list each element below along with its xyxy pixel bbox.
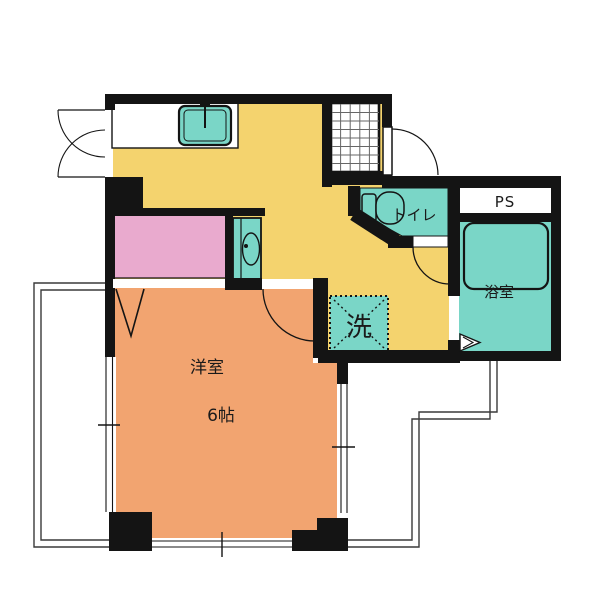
wall-above-closet bbox=[105, 208, 265, 216]
wall-room-corner-bl bbox=[109, 512, 152, 551]
entrance-porch bbox=[331, 103, 379, 172]
room-door-opening bbox=[262, 279, 313, 289]
washbasin-unit bbox=[233, 218, 261, 279]
closet bbox=[113, 214, 225, 278]
wall-toilet-door-left bbox=[388, 236, 413, 248]
outside-area bbox=[392, 90, 562, 176]
floor-plan: 洋室 6帖 洗 トイレ PS 浴室 bbox=[0, 0, 600, 600]
closet-opening bbox=[113, 279, 225, 288]
wall-top bbox=[105, 94, 392, 104]
wall-top-right bbox=[382, 176, 561, 188]
wall-porch-bottom bbox=[322, 171, 392, 185]
wall-under-basin bbox=[225, 278, 262, 290]
wall-room-right-lower bbox=[337, 361, 348, 384]
washbasin-drain-icon bbox=[244, 244, 248, 248]
window-right bbox=[338, 384, 350, 513]
floor-plan-canvas: 洋室 6帖 洗 トイレ PS 浴室 bbox=[0, 0, 600, 600]
wall-room-right-upper bbox=[313, 278, 328, 358]
wall-bath-bottom bbox=[445, 351, 561, 361]
wall-left-top bbox=[105, 94, 115, 110]
pipe-space-label: PS bbox=[495, 193, 516, 211]
window-left bbox=[103, 357, 116, 512]
wall-toilet-bath-divider bbox=[448, 186, 460, 296]
wall-bath-door-stub bbox=[448, 340, 460, 353]
toilet-door-threshold bbox=[413, 236, 448, 247]
bathroom-door-opening bbox=[449, 296, 459, 340]
wall-closet-basin bbox=[225, 208, 233, 290]
bathroom-label: 浴室 bbox=[484, 283, 514, 301]
wall-door-jamb bbox=[382, 94, 392, 127]
entrance-door-leaf bbox=[383, 127, 392, 175]
bathtub-icon bbox=[464, 223, 548, 289]
main-room-size-label: 6帖 bbox=[207, 406, 235, 426]
toilet-label: トイレ bbox=[391, 206, 436, 224]
wall-right bbox=[551, 176, 561, 361]
laundry-label: 洗 bbox=[346, 313, 372, 343]
wall-room-corner-br bbox=[317, 518, 348, 551]
wall-left-step bbox=[105, 177, 143, 210]
main-room-label: 洋室 bbox=[190, 358, 224, 378]
wall-under-ps bbox=[460, 213, 553, 222]
